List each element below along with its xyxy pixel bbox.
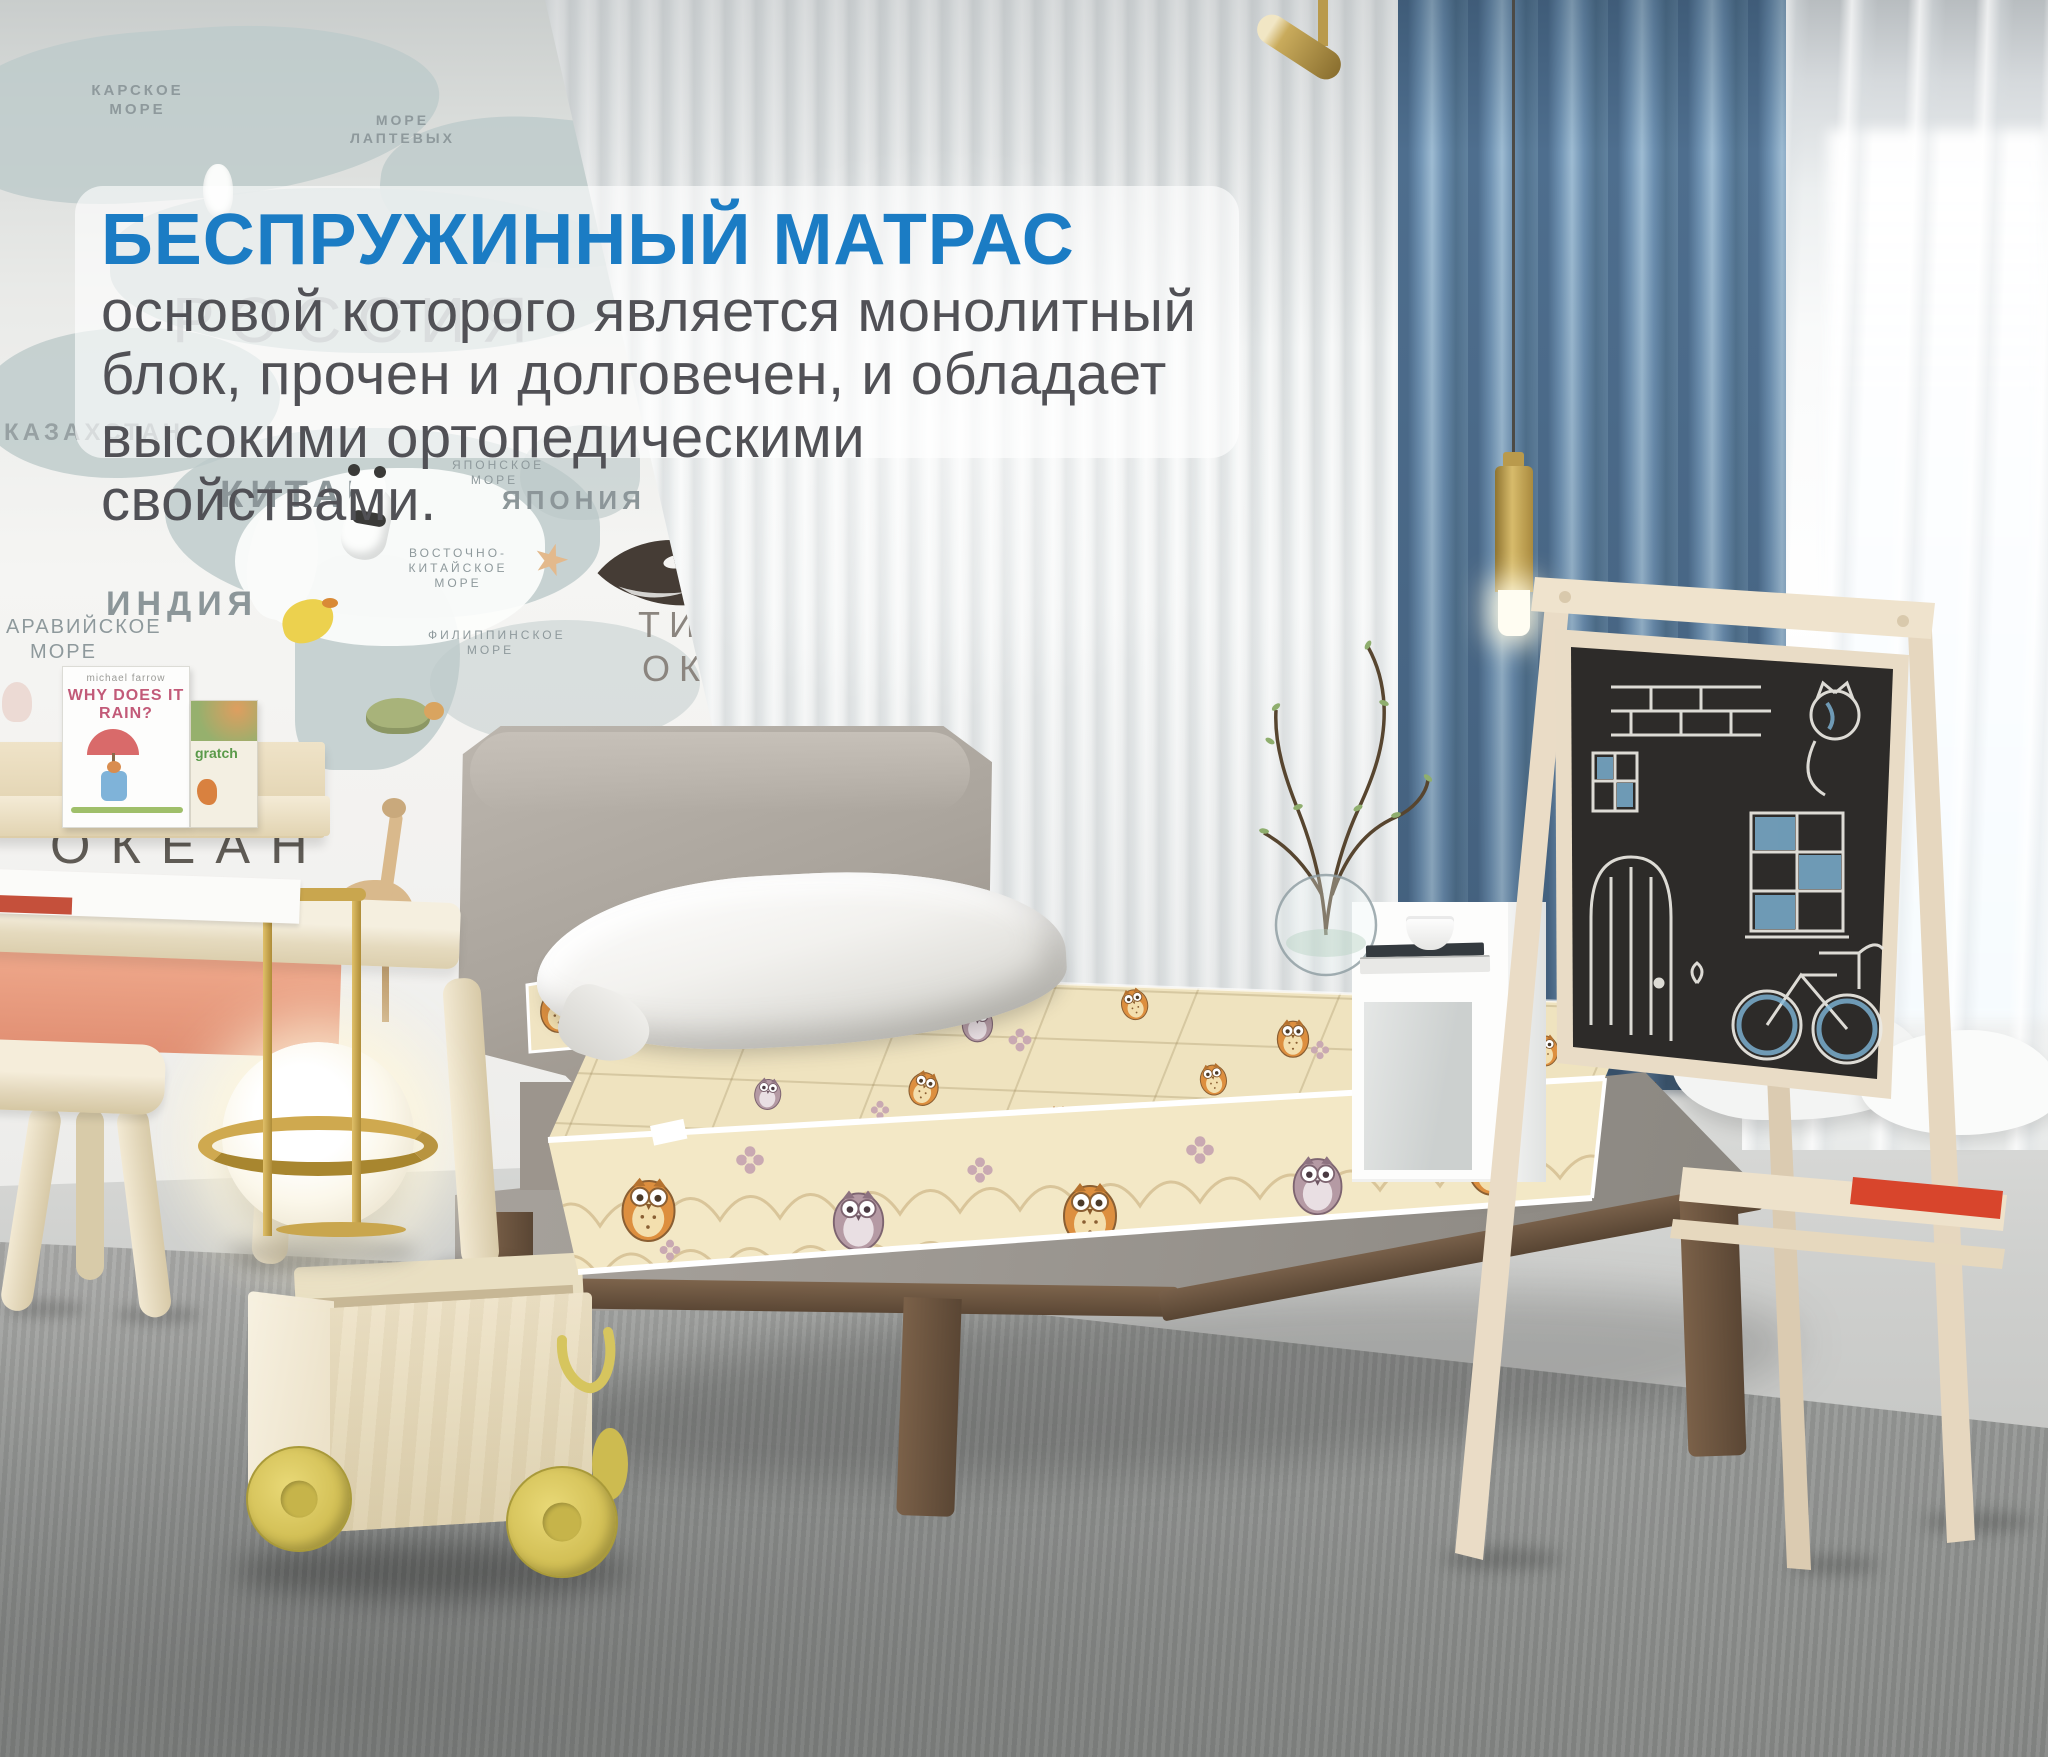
floor-lamp-rod bbox=[352, 896, 361, 1236]
umbrella-icon bbox=[87, 729, 139, 755]
map-label-arabian-sea: АРАВИЙСКОЕ МОРЕ bbox=[6, 615, 121, 665]
headboard-top-roll bbox=[470, 732, 970, 812]
girl-raincoat bbox=[101, 771, 127, 801]
pendant-wire bbox=[1512, 0, 1515, 466]
book-cover-art bbox=[191, 701, 257, 741]
floor-lamp-brass-ring bbox=[198, 1116, 438, 1176]
bed-leg bbox=[896, 1297, 962, 1517]
overlay-heading: БЕСПРУЖИННЫЙ МАТРАС bbox=[101, 200, 1213, 280]
book-why-does-it-rain: michael farrow WHY DOES IT RAIN? bbox=[62, 666, 190, 828]
marketing-text-panel: БЕСПРУЖИННЫЙ МАТРАС основой которого явл… bbox=[75, 186, 1239, 458]
book-title: gratch bbox=[195, 745, 238, 761]
red-folder bbox=[0, 894, 72, 914]
turtle-shell bbox=[366, 698, 430, 734]
book-gratch: gratch bbox=[190, 700, 258, 828]
girl-hair bbox=[107, 761, 121, 773]
grass-line bbox=[71, 807, 183, 813]
overlay-body-line-2: блок, прочен и долговечен, и обладает bbox=[101, 343, 1213, 406]
butterfly-art bbox=[197, 779, 217, 805]
map-label-philippine-sea: ФИЛИППИНСКОЕ МОРЕ bbox=[428, 628, 553, 658]
emu-head bbox=[382, 798, 406, 818]
cart-wheel bbox=[506, 1466, 618, 1578]
stool bbox=[0, 1039, 166, 1116]
floor-lamp-base bbox=[276, 1222, 406, 1237]
overlay-body-line-1: основой которого является монолитный bbox=[101, 280, 1213, 343]
bird-beak bbox=[322, 598, 338, 608]
floor-lamp-rod bbox=[263, 896, 272, 1236]
map-label-kara-sea: КАРСКОЕ МОРЕ bbox=[70, 82, 205, 120]
cart-rope-handle bbox=[552, 1318, 662, 1448]
ceiling-spot-rod bbox=[1318, 0, 1328, 46]
map-label-laptev-sea: МОРЕ ЛАПТЕВЫХ bbox=[335, 112, 470, 147]
book-title: WHY DOES IT RAIN? bbox=[63, 687, 189, 723]
turtle-head bbox=[424, 702, 444, 720]
cart-wheel bbox=[246, 1446, 352, 1552]
stool-leg bbox=[76, 1108, 104, 1280]
room-scene: КАРСКОЕ МОРЕ МОРЕ ЛАПТЕВЫХ РОССИЯ КАЗАХС… bbox=[0, 0, 2048, 1757]
book-author: michael farrow bbox=[63, 673, 189, 684]
map-label-east-china-sea: ВОСТОЧНО-КИТАЙСКОЕ МОРЕ bbox=[402, 546, 514, 591]
stacked-book bbox=[1360, 955, 1490, 974]
overlay-body-line-3: высокими ортопедическими свойствами. bbox=[101, 406, 1213, 532]
lamp-shadow bbox=[226, 1236, 416, 1266]
octopus-illustration bbox=[2, 682, 32, 722]
easel-chalkboard bbox=[1415, 555, 2015, 1575]
